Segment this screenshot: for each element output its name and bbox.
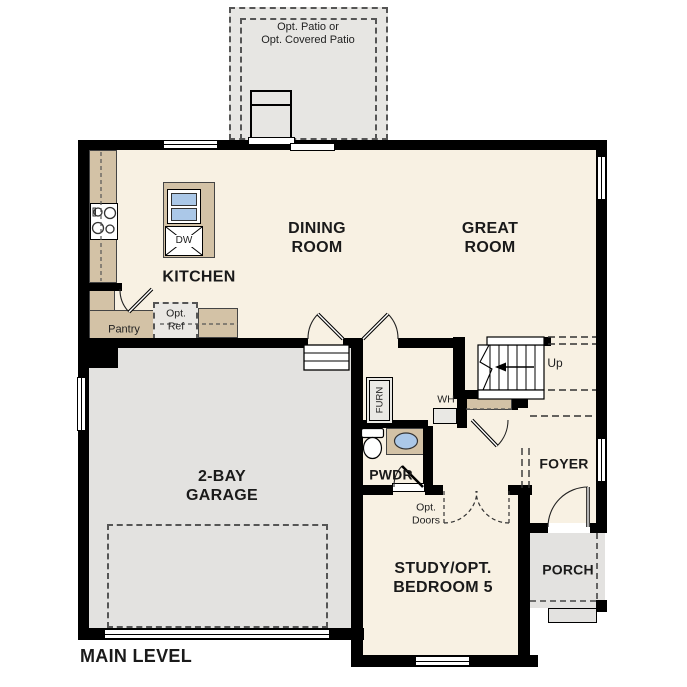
door-utility-hall xyxy=(363,314,398,339)
staircase xyxy=(478,337,544,399)
study-label: STUDY/OPT. BEDROOM 5 xyxy=(393,559,493,597)
opt-french-doors xyxy=(444,491,509,523)
great-room-label: GREAT ROOM xyxy=(462,219,518,257)
stairs-up-label: Up xyxy=(547,356,562,370)
garage-label: 2-BAY GARAGE xyxy=(186,467,258,505)
plan-linework-layer xyxy=(0,0,687,687)
floor-plan: Opt. Patio or Opt. Covered Patio DINING … xyxy=(0,0,687,687)
opt-doors-label: Opt. Doors xyxy=(412,501,440,526)
patio-label: Opt. Patio or Opt. Covered Patio xyxy=(261,21,355,47)
water-heater-label: WH xyxy=(437,394,455,407)
porch-label: PORCH xyxy=(542,562,594,579)
door-pantry xyxy=(120,289,152,312)
stove-burners xyxy=(93,208,116,234)
powder-room-label: PWDR xyxy=(369,467,413,484)
plan-title: MAIN LEVEL xyxy=(80,646,192,667)
vanity-sink xyxy=(395,433,418,449)
stair-top-landing xyxy=(487,337,544,345)
furnace-label: FURN xyxy=(374,387,385,413)
toilet xyxy=(362,429,384,459)
opt-ref-label: Opt. Ref xyxy=(166,307,186,332)
garage-entry-steps xyxy=(304,345,349,370)
door-garage-entry xyxy=(308,314,343,339)
foyer-label: FOYER xyxy=(539,456,588,473)
stair-bottom-tread xyxy=(478,390,544,399)
door-front-entry xyxy=(548,487,588,527)
kitchen-label: KITCHEN xyxy=(162,267,235,286)
dining-room-label: DINING ROOM xyxy=(288,219,346,257)
door-coat-closet xyxy=(472,420,508,446)
pantry-label: Pantry xyxy=(108,323,140,336)
dishwasher-label: DW xyxy=(175,235,194,247)
